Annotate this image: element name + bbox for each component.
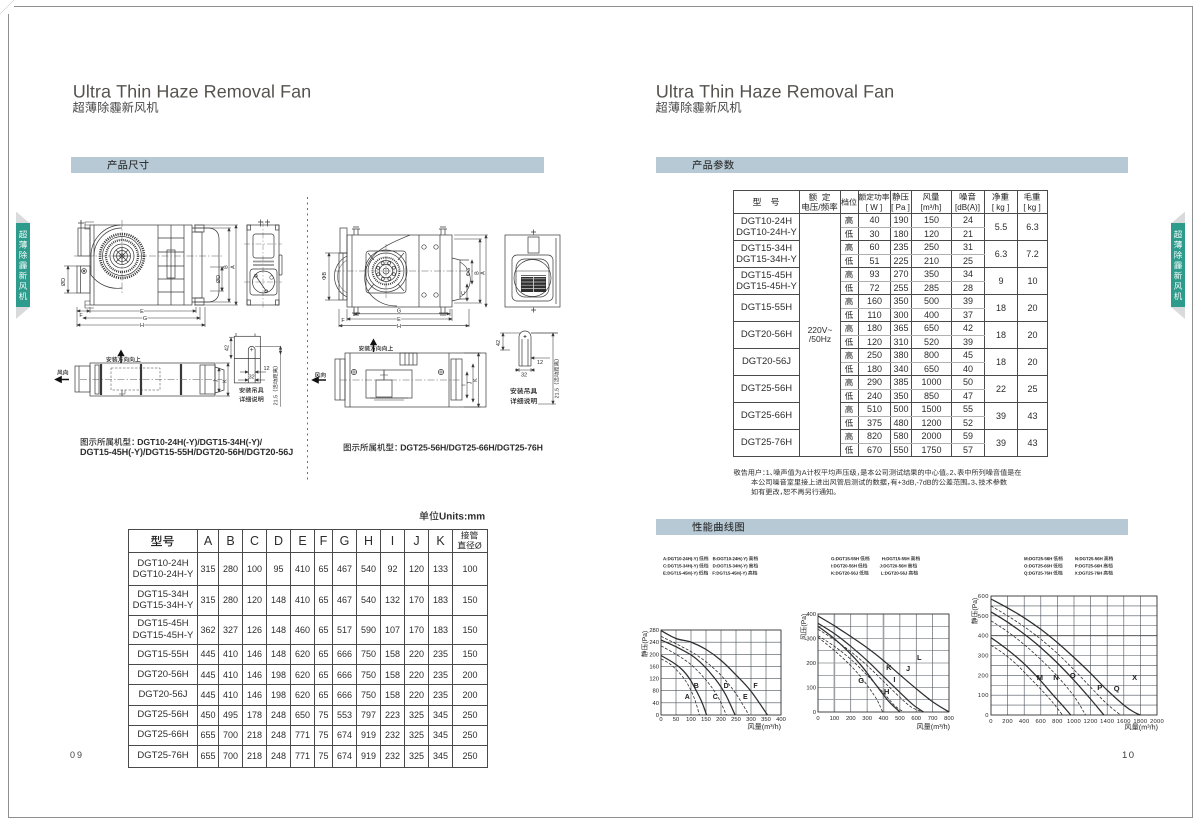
svg-text:[ kg ]: [ kg ] [992, 203, 1009, 212]
svg-text:[ kg ]: [ kg ] [1023, 203, 1040, 212]
svg-text:[ Pa ]: [ Pa ] [891, 203, 910, 212]
svg-text:[m³/h]: [m³/h] [921, 203, 941, 212]
svg-text:[ W ]: [ W ] [866, 203, 882, 212]
svg-text:[dB(A)]: [dB(A)] [955, 203, 980, 212]
